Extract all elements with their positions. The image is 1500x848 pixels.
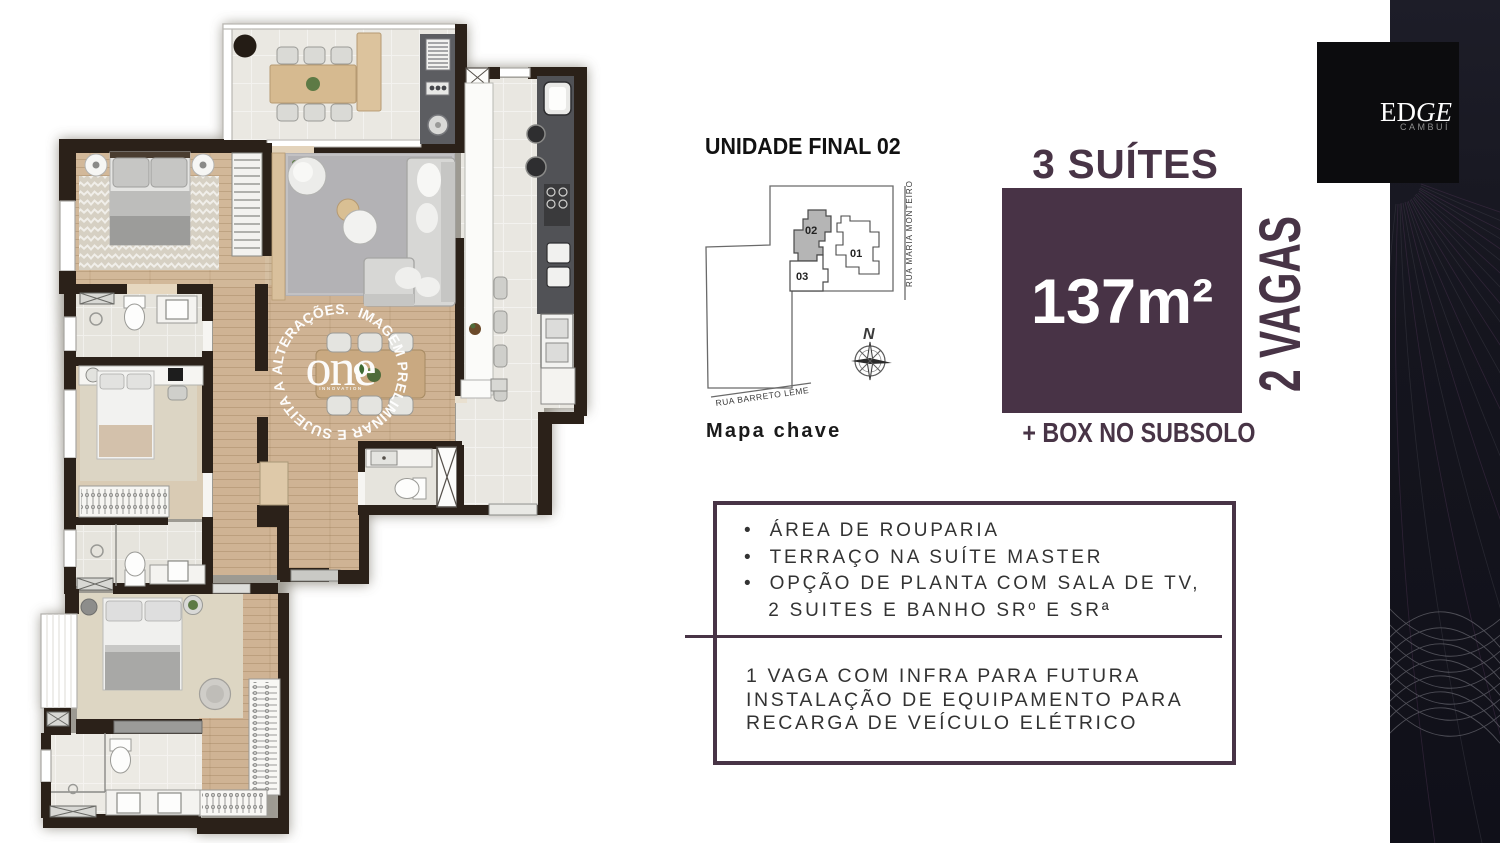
- svg-text:01: 01: [850, 248, 862, 260]
- svg-text:N: N: [863, 326, 875, 343]
- svg-text:2 VAGAS: 2 VAGAS: [1254, 216, 1313, 392]
- svg-text:RUA MARIA MONTEIRO: RUA MARIA MONTEIRO: [905, 180, 914, 287]
- svg-text:INNOVATION: INNOVATION: [319, 386, 363, 391]
- svg-text:02: 02: [805, 225, 817, 237]
- svg-text:03: 03: [796, 271, 808, 283]
